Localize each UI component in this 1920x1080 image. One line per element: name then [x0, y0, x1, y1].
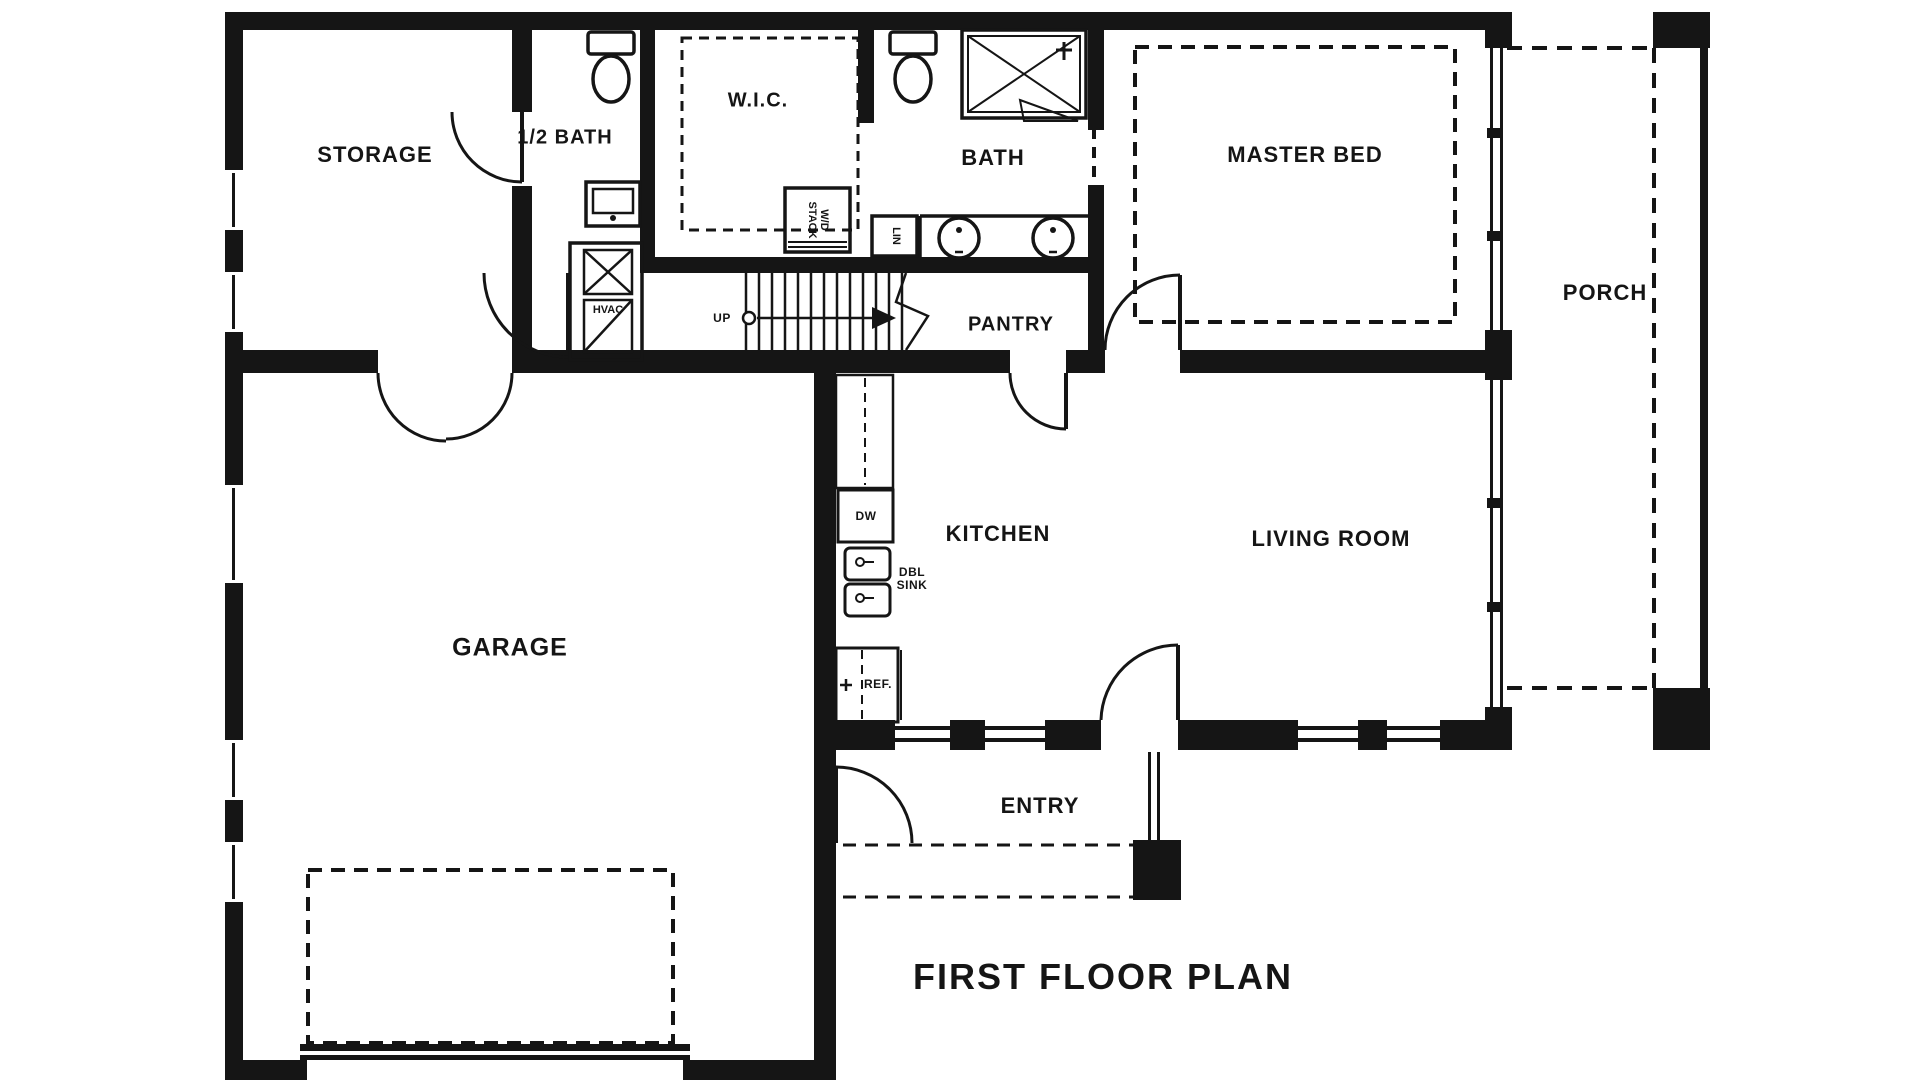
shower-icon: [962, 30, 1086, 121]
garage-door-panel-outer: [300, 1044, 690, 1051]
master-carpet-outline: [1135, 47, 1455, 322]
garage-clearance-outline: [308, 870, 673, 1043]
washer-dryer-label: W/DSTACK: [806, 201, 830, 238]
window-icon: [225, 170, 243, 902]
windows-left-wall: [225, 170, 243, 902]
wall-bath-master-lower: [1088, 185, 1104, 373]
entry-stoop: [843, 752, 1160, 897]
wic-carpet-outline: [682, 38, 858, 230]
wall-bath-master-upper: [1088, 30, 1104, 130]
sink-icon: [586, 182, 640, 226]
wall-bath-bottom: [644, 257, 1092, 273]
toilet-icon: [890, 32, 936, 102]
door-front: [1101, 645, 1178, 720]
wall-garage-bottom-right: [683, 1060, 836, 1080]
stair-arrow-icon: [872, 307, 896, 329]
garage-door-panel-inner: [300, 1055, 690, 1060]
plus-icon: [840, 679, 852, 691]
stair-newel: [743, 312, 755, 324]
room-label-living-room: LIVING ROOM: [1252, 526, 1411, 552]
wall-south-4: [1178, 720, 1298, 750]
window-mullion: [1487, 128, 1503, 138]
door-pantry: [1010, 373, 1066, 429]
refrigerator-label: REF.: [864, 677, 892, 691]
wall-south-1: [814, 720, 895, 750]
stairs-up-label: UP: [713, 311, 731, 325]
door-master: [1105, 275, 1180, 350]
room-label-pantry: PANTRY: [968, 314, 1054, 337]
wall-block-ne: [1485, 12, 1512, 48]
door-garage-entry: [836, 767, 912, 843]
entry-post: [1133, 840, 1181, 900]
dbl-sink-label: DBLSINK: [897, 566, 928, 592]
room-label-storage: STORAGE: [317, 142, 432, 168]
door-garage-double: [378, 373, 512, 441]
page-title: FIRST FLOOR PLAN: [913, 956, 1293, 998]
wall-wic-right: [858, 12, 874, 123]
room-label-porch: PORCH: [1563, 280, 1647, 306]
toilet-icon: [588, 32, 634, 102]
window-mullion: [1487, 231, 1503, 241]
wall-block-se: [1485, 707, 1512, 750]
porch-wall-right: [1700, 40, 1708, 695]
hvac-label: HVAC: [593, 304, 623, 316]
room-label-bath: BATH: [961, 145, 1024, 171]
wall-wic-left: [640, 30, 655, 273]
wall-mid-a: [243, 350, 378, 373]
porch-outline: [1507, 48, 1654, 688]
linen-label: LIN: [889, 227, 901, 245]
room-label-half-bath: 1/2 BATH: [517, 127, 612, 150]
room-label-garage: GARAGE: [452, 634, 568, 663]
hvac-closet: [570, 243, 642, 360]
room-label-kitchen: KITCHEN: [946, 521, 1051, 547]
kitchen-counter: [836, 375, 901, 722]
wall-block-mid: [1485, 330, 1512, 380]
door-storage: [452, 112, 522, 182]
wall-garage-east: [814, 350, 836, 1072]
wall-garage-bottom-left: [225, 1060, 307, 1080]
wall-south-2: [950, 720, 985, 750]
window-mullion: [1487, 602, 1503, 612]
room-label-entry: ENTRY: [1001, 793, 1080, 819]
sink-basin: [845, 548, 890, 580]
shower-head-icon: [1056, 42, 1072, 60]
wall-storage-divider-upper: [512, 30, 532, 112]
room-label-wic: W.I.C.: [728, 90, 788, 113]
porch-post-bottom: [1653, 688, 1710, 750]
wall-mid-d: [1180, 350, 1485, 373]
sink-basin: [845, 584, 890, 616]
wall-south-5: [1358, 720, 1387, 750]
room-label-master-bed: MASTER BED: [1227, 142, 1382, 168]
floor-plan-page: STORAGE 1/2 BATH W.I.C. BATH MASTER BED …: [0, 0, 1920, 1080]
vanity-double-sink: [920, 216, 1088, 258]
stairs: [743, 273, 928, 350]
window-mullion: [1487, 498, 1503, 508]
wall-south-3: [1045, 720, 1101, 750]
dishwasher-label: DW: [856, 509, 877, 523]
